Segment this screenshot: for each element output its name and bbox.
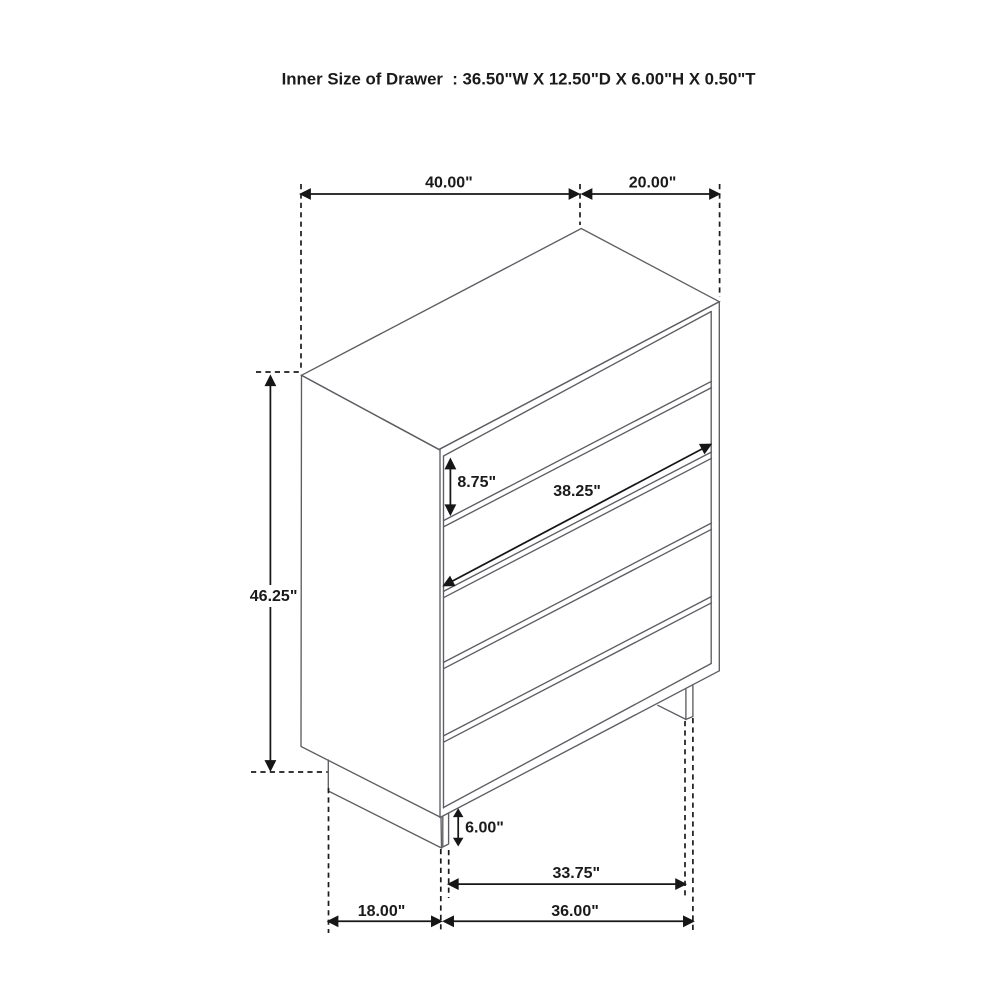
svg-text:36.00": 36.00" bbox=[551, 903, 599, 920]
svg-text:Inner Size of Drawer : 36.50": Inner Size of Drawer : 36.50"W X 12.50"D… bbox=[282, 70, 757, 89]
svg-text:18.00": 18.00" bbox=[358, 903, 406, 920]
svg-text:20.00": 20.00" bbox=[629, 175, 677, 192]
svg-text:40.00": 40.00" bbox=[425, 175, 473, 192]
svg-text:33.75": 33.75" bbox=[552, 865, 600, 882]
svg-text:8.75": 8.75" bbox=[457, 474, 496, 491]
svg-text:38.25": 38.25" bbox=[553, 483, 601, 500]
svg-text:6.00": 6.00" bbox=[465, 820, 504, 837]
svg-text:46.25": 46.25" bbox=[250, 588, 298, 605]
